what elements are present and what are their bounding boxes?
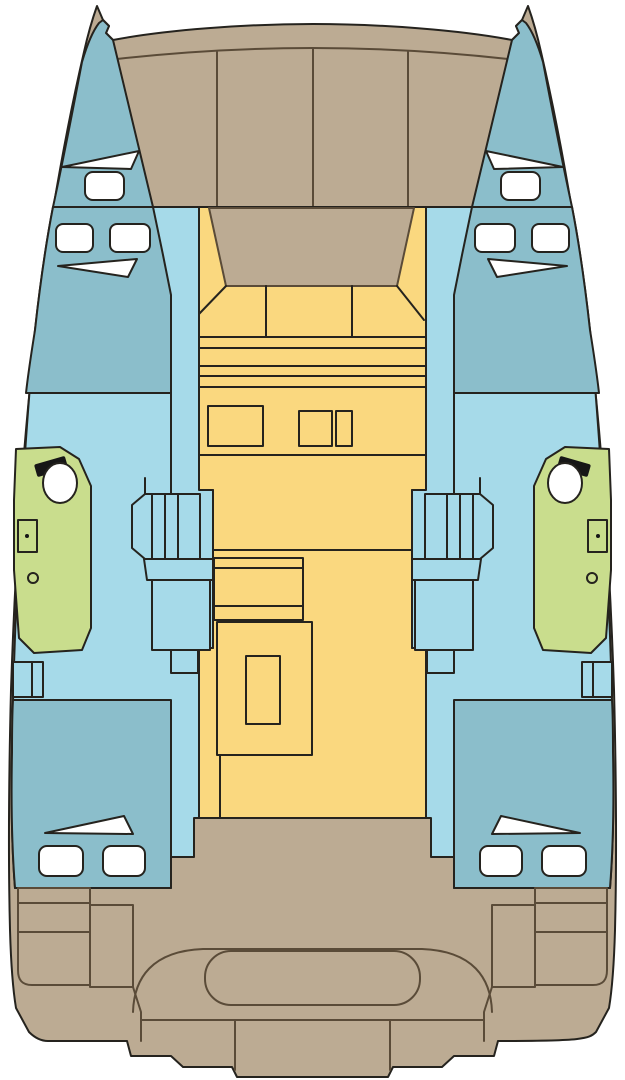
catamaran-floor-plan [0,0,625,1080]
dinette-table [246,656,280,724]
galley-stove [208,406,263,446]
companionway-steps [152,494,200,559]
transom-step [18,888,90,903]
berth-hatch [56,224,93,252]
galley-sink [299,411,332,446]
aft-deck-hatch [39,846,83,876]
galley-sink-small [336,411,352,446]
step-landing [144,559,213,580]
locker [13,662,32,697]
transom-step [18,903,90,932]
cabin-front-deck [209,208,414,286]
transom-platform [90,905,133,987]
floor-plan-canvas [0,0,625,1080]
aft-deck-hatch [103,846,145,876]
wardrobe [152,580,210,650]
sink-drain-icon [25,534,29,538]
aft-step [171,650,198,673]
aft-cabin [12,700,171,888]
berth-hatch [110,224,150,252]
transom-step-lower [18,932,90,985]
shower-drain-icon [28,573,38,583]
bow-deck-hatch [85,172,124,200]
shower-door [132,494,152,559]
locker [32,662,43,697]
toilet-bowl-icon [43,463,77,503]
